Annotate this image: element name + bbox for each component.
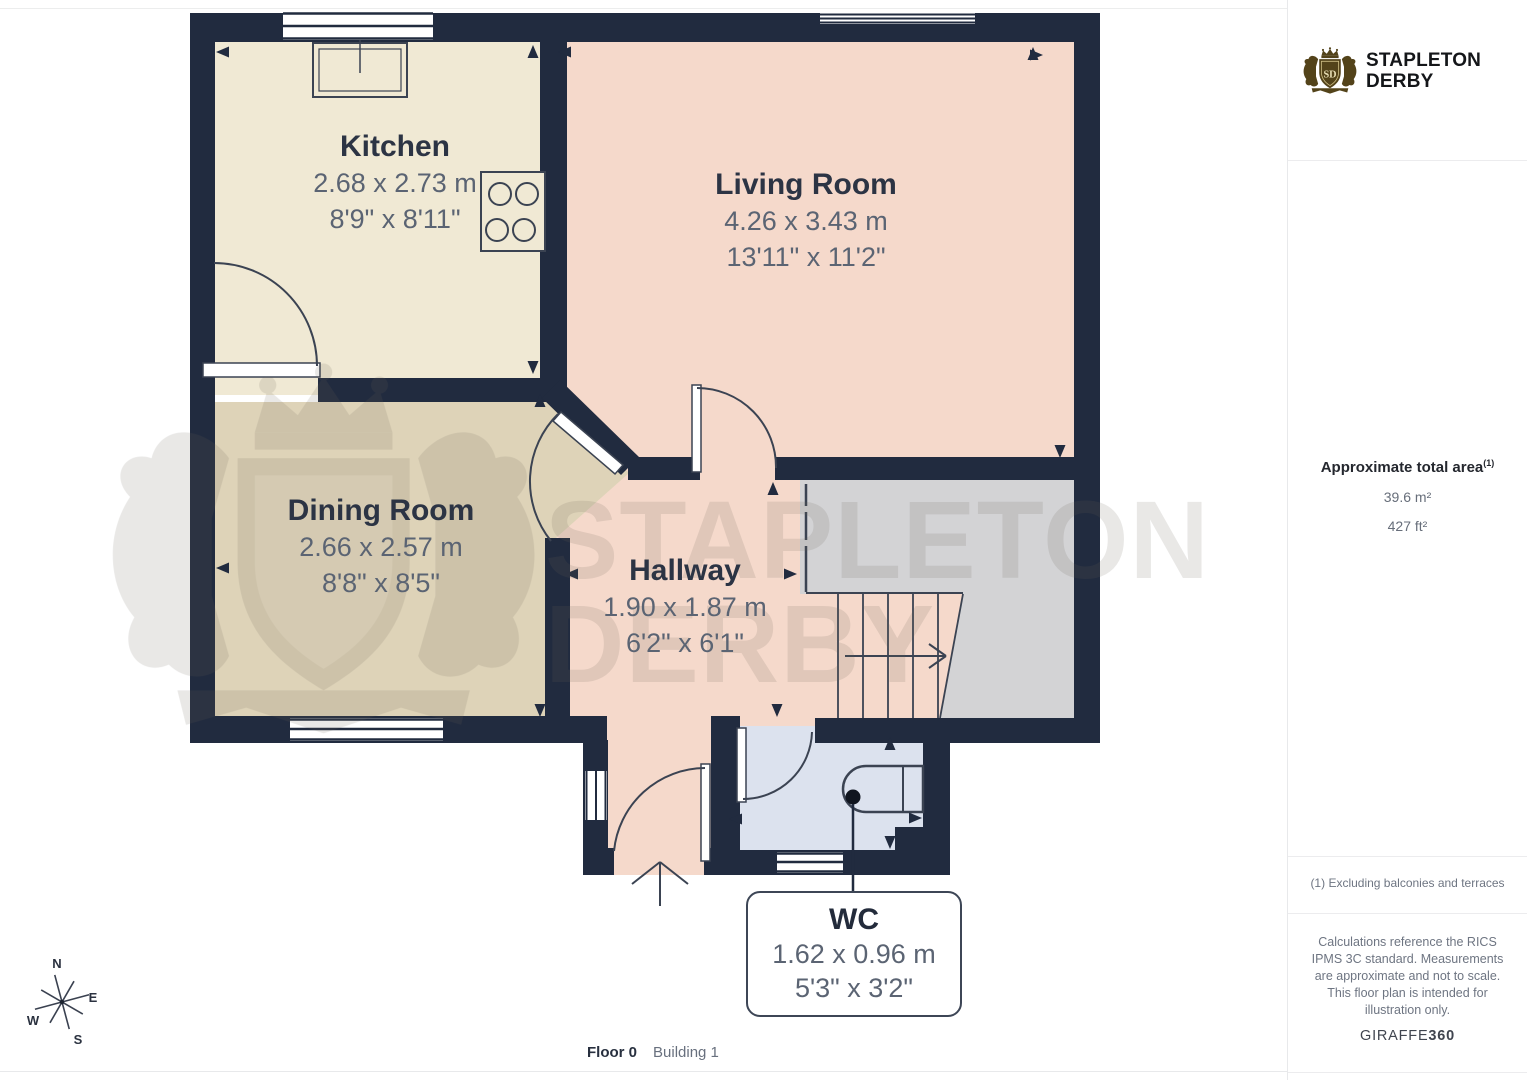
sidebar-divider [1288, 1072, 1527, 1073]
kitchen-window [283, 12, 433, 40]
room-size-metric: 2.66 x 2.57 m [231, 529, 531, 565]
footnote-marker: (1) [1483, 458, 1494, 468]
room-name: Living Room [650, 166, 962, 203]
building-label: Building 1 [653, 1044, 719, 1061]
sidebar-divider [1288, 160, 1527, 161]
hallway-label: Hallway 1.90 x 1.87 m 6'2" x 6'1" [560, 552, 810, 661]
compass-n: N [52, 956, 61, 971]
total-area-title: Approximate total area(1) [1288, 458, 1527, 476]
agency-logo: SD STAPLETON DERBY [1302, 46, 1481, 96]
hallway-side-window [585, 771, 607, 820]
agency-name-line2: DERBY [1366, 71, 1481, 92]
floor-plan: STAPLETON DERBY [0, 0, 1287, 1080]
compass-icon: N E W S [10, 942, 120, 1054]
provider-name: GIRAFFE [1360, 1028, 1428, 1044]
room-name: Dining Room [231, 492, 531, 529]
info-sidebar: SD STAPLETON DERBY Approximate total are… [1287, 0, 1527, 1080]
total-area-ft2: 427 ft² [1288, 518, 1527, 534]
stapleton-derby-crest-icon: SD [1302, 46, 1358, 96]
wc-label-box: WC 1.62 x 0.96 m 5'3" x 3'2" [746, 891, 962, 1017]
provider-brand: GIRAFFE360 [1288, 1028, 1527, 1044]
room-size-metric: 1.62 x 0.96 m [748, 937, 960, 971]
room-size-imperial: 13'11" x 11'2" [650, 239, 962, 275]
room-size-imperial: 5'3" x 3'2" [748, 971, 960, 1005]
kitchen-label: Kitchen 2.68 x 2.73 m 8'9" x 8'11" [245, 128, 545, 237]
compass-s: S [74, 1032, 83, 1047]
sidebar-divider [1288, 913, 1527, 914]
area-footnote: (1) Excluding balconies and terraces [1288, 876, 1527, 890]
compass-w: W [27, 1013, 40, 1028]
room-name: Kitchen [245, 128, 545, 165]
dining-room-label: Dining Room 2.66 x 2.57 m 8'8" x 8'5" [231, 492, 531, 601]
disclaimer-text: Calculations reference the RICS IPMS 3C … [1288, 934, 1527, 1019]
total-area-block: Approximate total area(1) 39.6 m² 427 ft… [1288, 458, 1527, 534]
total-area-m2: 39.6 m² [1288, 489, 1527, 505]
provider-suffix: 360 [1428, 1028, 1455, 1044]
crest-monogram: SD [1323, 69, 1336, 80]
plan-caption: Floor 0 Building 1 [587, 1044, 719, 1061]
living-window [820, 13, 975, 24]
room-size-imperial: 8'9" x 8'11" [245, 201, 545, 237]
agency-name-line1: STAPLETON [1366, 50, 1481, 71]
room-size-metric: 2.68 x 2.73 m [245, 165, 545, 201]
room-size-metric: 4.26 x 3.43 m [650, 203, 962, 239]
living-room-label: Living Room 4.26 x 3.43 m 13'11" x 11'2" [650, 166, 962, 275]
compass-e: E [89, 990, 98, 1005]
room-size-imperial: 8'8" x 8'5" [231, 565, 531, 601]
room-name: WC [748, 903, 960, 937]
sidebar-divider [1288, 856, 1527, 857]
floor-label: Floor 0 [587, 1044, 637, 1061]
room-size-metric: 1.90 x 1.87 m [560, 589, 810, 625]
room-name: Hallway [560, 552, 810, 589]
room-size-imperial: 6'2" x 6'1" [560, 625, 810, 661]
wc-window [777, 852, 843, 873]
